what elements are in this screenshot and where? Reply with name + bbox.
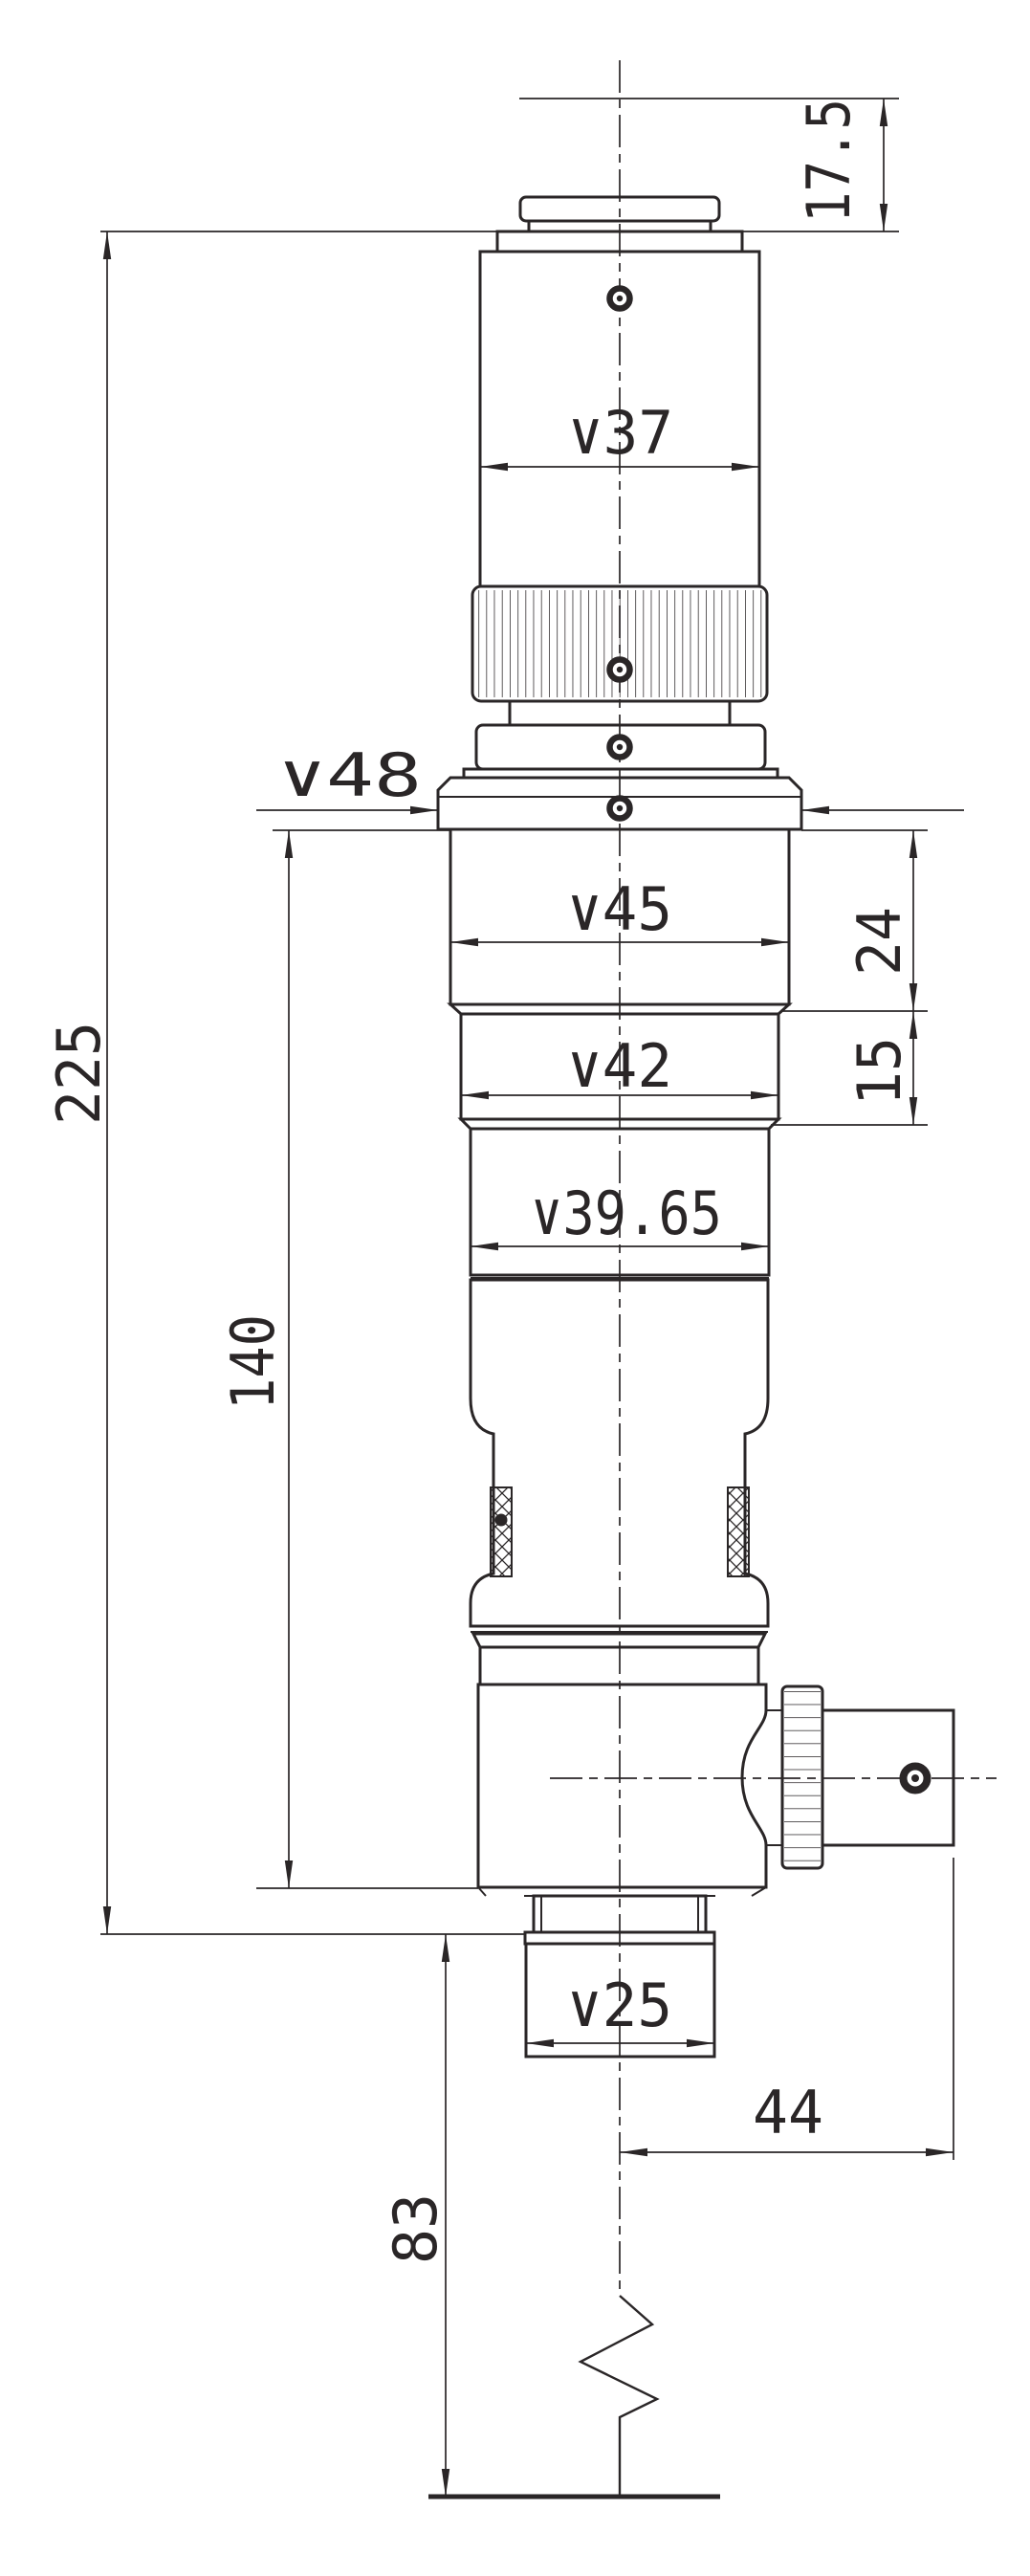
dim-label-140: 140 bbox=[218, 1314, 288, 1410]
technical-drawing: 17.5 225 140 83 24 15 ∨37 ∨48 ∨45 ∨42 ∨3… bbox=[0, 0, 1030, 2571]
knob-screw-dot bbox=[904, 1767, 928, 1791]
grip-pin-dot bbox=[495, 1514, 508, 1527]
screw-dot bbox=[610, 289, 630, 309]
drawing-sheet: 17.5 225 140 83 24 15 ∨37 ∨48 ∨45 ∨42 ∨3… bbox=[0, 0, 1030, 2571]
dim-label-d45: ∨45 bbox=[567, 874, 672, 944]
dim-label-d48: ∨48 bbox=[278, 740, 422, 810]
part-focus-housing bbox=[478, 1684, 766, 1887]
dim-label-24: 24 bbox=[844, 907, 914, 976]
dim-label-44: 44 bbox=[753, 2078, 823, 2147]
dim-label-d37: ∨37 bbox=[568, 398, 673, 468]
dim-label-d25: ∨25 bbox=[567, 1971, 672, 2040]
screw-dot bbox=[610, 799, 630, 819]
screw-dot bbox=[610, 738, 630, 758]
grip-patch-left bbox=[491, 1487, 512, 1576]
dim-label-d3965: ∨39.65 bbox=[531, 1178, 722, 1248]
screw-dot bbox=[610, 660, 630, 680]
dim-label-d42: ∨42 bbox=[567, 1031, 672, 1101]
dim-label-225: 225 bbox=[44, 1022, 114, 1125]
dim-label-17-5: 17.5 bbox=[794, 99, 864, 223]
grip-patch-right bbox=[728, 1487, 749, 1576]
dim-label-83: 83 bbox=[381, 2193, 450, 2264]
dim-label-15: 15 bbox=[844, 1037, 914, 1106]
knob-wheel-ribs bbox=[784, 1690, 821, 1864]
